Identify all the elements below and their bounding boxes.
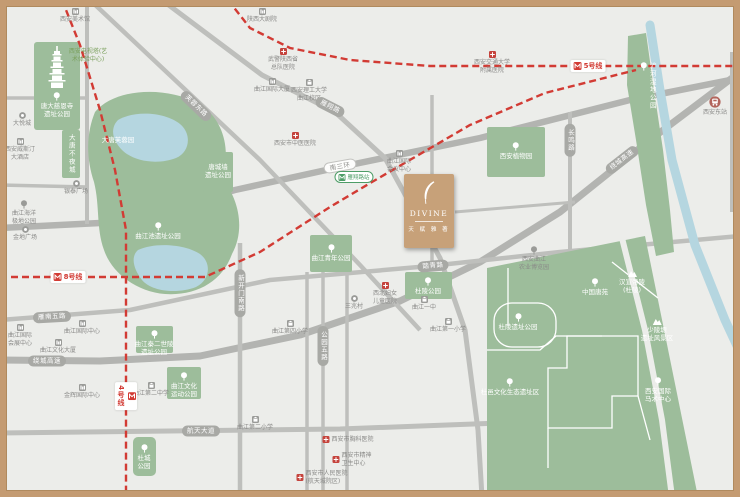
road-label-text: 新开门南路 [237, 274, 245, 312]
park-label: 杜邑文化生态遗址区 [481, 378, 540, 396]
label-text: 杜城 [138, 454, 151, 462]
metro-line-name: 8号线 [64, 272, 83, 282]
poi-label: 西安美术馆 [60, 8, 90, 24]
poi-label: 曲江文化大厦 [40, 339, 76, 355]
road-label: 航天大道 [182, 426, 220, 437]
label-text: 少陵塬 [647, 326, 667, 334]
poi-label: 曲江第二小学 [237, 416, 273, 432]
poi-label: 曲江第一小学 [430, 318, 466, 334]
poi-label: 曲江第二中学 [133, 382, 169, 398]
label-text: 农业博览园 [519, 264, 549, 271]
road-label-text: 踏青路 [422, 261, 444, 271]
park-label: 杜城公园 [138, 444, 151, 471]
label-text: 西安东站 [703, 109, 727, 116]
label-text: 杜陵公园 [415, 287, 441, 295]
poi-label: 西安威斯汀大酒店 [5, 138, 35, 162]
poi-label: 曲江国际会展中心 [8, 324, 32, 348]
poi-label: 金辉国际中心 [64, 384, 100, 400]
poi-label: 曲江国际会议中心 [387, 150, 411, 174]
metro-line-label: 4号线 [115, 382, 137, 410]
park-label: 少陵塬遗址风景区 [641, 318, 674, 343]
metro-station-name: 雁翔路站 [347, 173, 369, 181]
label-text: 运动公园 [171, 390, 197, 398]
metro-line-name: 4号线 [116, 385, 126, 407]
park-label: 汉宣帝陵(杜陵) [619, 270, 645, 295]
park-label: 杜陵公园 [415, 277, 441, 295]
label-text: 唐大慈恩寺 [41, 102, 74, 110]
project-name-en: DIVINE [410, 209, 448, 218]
label-text: 遗址风景区 [641, 334, 674, 342]
park-label: 西安植物园 [500, 142, 533, 160]
label-text: 汉宣帝陵 [619, 278, 645, 286]
park-label: 浐河湿地公园 [640, 62, 656, 110]
label-text: 曲江海洋 [12, 210, 36, 217]
poi-label: 大悦城 [13, 112, 31, 128]
label-text: 陕西大剧院 [247, 16, 277, 23]
location-map: 南三环芙蓉东路雁翔路长鸣路绕城高速绕城高速雁南五路踏青路航天大道新开门南路公园五… [0, 0, 740, 497]
poi-label: 西安市胸科医院 [322, 436, 373, 444]
poi-label: 曲江国际中心 [64, 320, 100, 336]
park-label: 大唐不夜城 [67, 134, 75, 174]
label-text: 金地广场 [13, 234, 37, 241]
label-text: 唐城墙 [208, 163, 228, 171]
label-text: 附属医院 [480, 67, 504, 74]
project-marker: DIVINE天 赋 雅 著 [404, 174, 454, 248]
poi-label: 陕西大剧院 [247, 8, 277, 24]
label-text: 儿童医院 [373, 298, 397, 305]
park-label: 大唐芙蓉园 [102, 136, 135, 144]
label-text: 中国唐苑 [582, 288, 608, 296]
label-text: 西安市胸科医院 [331, 436, 373, 443]
feather-logo-icon [420, 180, 438, 206]
pagoda-icon [45, 46, 69, 92]
label-text: 曲江第四小学 [272, 328, 308, 335]
poi-label: 曲江海洋极地公园 [12, 200, 36, 226]
label-text: 曲江国际中心 [64, 328, 100, 335]
road-label: 雁南五路 [33, 311, 72, 324]
park-label: 唐大慈恩寺遗址公园 [41, 92, 74, 119]
label-text: 西安理工大学 [291, 87, 327, 94]
label-text: 公园 [138, 462, 151, 470]
poi-label: 银泰广场 [64, 180, 88, 196]
road-label-text: 绕城高速 [33, 357, 61, 365]
label-text: 西安美术馆 [60, 16, 90, 23]
road-label-text: 雁南五路 [38, 312, 66, 321]
label-text: 西安市人民医院 [305, 470, 347, 477]
label-text: 西安市中医医院 [274, 140, 316, 147]
label-text: 武警陕西省 [268, 56, 298, 63]
label-text: 曲江第二中学 [133, 390, 169, 397]
label-text: 极地公园 [12, 218, 36, 225]
label-text: 曲江文化大厦 [40, 347, 76, 354]
label-text: (航天城院区) [305, 478, 340, 485]
label-text: 遗址公园 [44, 110, 70, 118]
label-text: 遗址公园 [205, 171, 231, 179]
label-text: 曲江一中 [412, 304, 436, 311]
poi-label: 西安市人民医院(航天城院区) [296, 470, 347, 486]
label-text: 术体验中心) [72, 56, 104, 63]
label-text: (杜陵) [623, 286, 641, 294]
label-text: 西安威斯汀 [5, 146, 35, 153]
label-text: 遗址公园 [141, 348, 167, 356]
label-text: 西安电视塔(艺 [69, 48, 107, 55]
poi-label: 曲江第四小学 [272, 320, 308, 336]
label-text: 大悦城 [13, 120, 31, 127]
label-text: 马术中心 [645, 395, 671, 403]
metro-line-label: 8号线 [51, 271, 86, 283]
label-text: 曲江国际大厦 [254, 86, 290, 93]
poi-label: 西安市中医医院 [274, 132, 316, 148]
label-text: 卫生中心 [341, 460, 365, 467]
label-text: 浐河湿地公园 [648, 62, 656, 110]
label-text: 曲江池遗址公园 [135, 232, 181, 240]
label-text: 曲江国际 [8, 332, 32, 339]
park-label: 唐城墙遗址公园 [205, 163, 231, 180]
poi-label: 金地广场 [13, 226, 37, 242]
label-text: 会议中心 [387, 166, 411, 173]
poi-label: 西安曲江农业博览园 [519, 246, 549, 272]
label-text: 曲江第二小学 [237, 424, 273, 431]
label-text: 杜邑文化生态遗址区 [481, 388, 540, 396]
metro-line-name: 5号线 [584, 61, 603, 71]
label-text: 会展中心 [8, 340, 32, 347]
label-text: 三兆村 [345, 303, 363, 310]
park-label: 西安国际马术中心 [645, 377, 671, 404]
poi-label: 曲江国际大厦 [254, 78, 290, 94]
label-text: 大唐芙蓉园 [102, 136, 135, 144]
label-text: 西安交通大学 [474, 59, 510, 66]
park-label: 杜陵遗址公园 [499, 313, 538, 331]
poi-label: 三兆村 [345, 295, 363, 311]
label-text: 西安国际 [645, 387, 671, 395]
label-text: 西安植物园 [500, 152, 533, 160]
metro-station-badge: 雁翔路站 [334, 171, 373, 183]
label-text: 曲江文化 [171, 382, 197, 390]
metro-line-label: 5号线 [571, 60, 606, 72]
park-label: 中国唐苑 [582, 278, 608, 296]
road-label: 绕城高速 [28, 356, 66, 367]
poi-label: 西安交通大学附属医院 [474, 51, 510, 75]
poi-label: 曲江一中 [412, 296, 436, 312]
label-text: 金辉国际中心 [64, 392, 100, 399]
label-text: 西安曲江 [522, 256, 546, 263]
label-text: 西安市精神 [341, 452, 371, 459]
park-label: 曲江青年公园 [312, 244, 351, 262]
label-text: 曲江秦二世陵 [135, 340, 174, 348]
map-base-layer [0, 0, 740, 497]
label-text: 曲江青年公园 [312, 254, 351, 262]
label-text: 大酒店 [11, 154, 29, 161]
poi-label: 西安市精神卫生中心 [332, 452, 371, 468]
road-label-text: 公园五路 [320, 331, 328, 361]
road-label: 新开门南路 [235, 269, 246, 317]
label-text: 总队医院 [271, 64, 295, 71]
poi-label: 西安东站 [703, 96, 727, 117]
road-label-text: 航天大道 [187, 427, 215, 435]
poi-label: 西北妇女儿童医院 [373, 282, 397, 306]
label-text: 曲江第一小学 [430, 326, 466, 333]
poi-label: 武警陕西省总队医院 [268, 48, 298, 72]
project-divider [415, 221, 443, 222]
park-label: 曲江文化运动公园 [171, 372, 197, 399]
park-label: 曲江池遗址公园 [135, 222, 181, 240]
road-label: 长鸣路 [565, 124, 576, 157]
park-label: 曲江秦二世陵遗址公园 [135, 330, 174, 357]
road-label-text: 长鸣路 [567, 129, 575, 152]
poi-label: 西安电视塔(艺术体验中心) [69, 48, 107, 64]
label-text: 杜陵遗址公园 [499, 323, 538, 331]
label-text: 大唐不夜城 [67, 134, 75, 174]
label-text: 西北妇女 [373, 290, 397, 297]
road-label: 公园五路 [318, 326, 329, 366]
label-text: 曲江国际 [387, 158, 411, 165]
project-name-cn: 天 赋 雅 著 [408, 225, 449, 233]
label-text: 银泰广场 [64, 188, 88, 195]
